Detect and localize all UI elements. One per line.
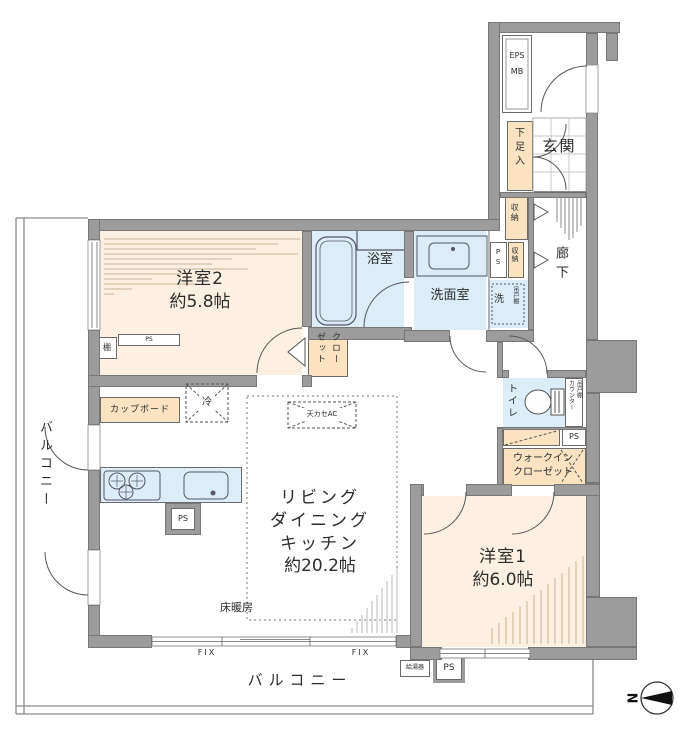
western2-name: 洋室2 (130, 270, 270, 290)
floor-plan: N EPS MB 玄関 下足入 収納 PS 収納 廊下 洗 吊戸棚 浴室 洗面室… (0, 0, 696, 750)
genkan-step-hatch (557, 197, 581, 240)
floorplan-linework: N (0, 0, 696, 750)
toilet-counter-labels: カウンター 吊戸棚 (565, 380, 583, 426)
balcony-label-bottom: バルコニー (225, 671, 375, 691)
ps-kitchen-label: PS (171, 508, 195, 530)
walkin-closet-label-1: ウォークイン (503, 452, 583, 465)
ldk-name: リビング ダイニング キッチン (235, 486, 405, 556)
washer-cupboard-label: 吊戸棚 (511, 286, 518, 304)
shoe-box-label: 下足入 (512, 127, 524, 169)
eps-label: EPS (502, 50, 532, 62)
fix-label-right: FIX (346, 647, 376, 658)
compass-icon: N (627, 682, 674, 714)
ps-wic-label: PS (562, 428, 586, 446)
ps-corridor-label: PS (494, 248, 502, 268)
floor-heating-label: 床暖房 (220, 602, 253, 615)
bathroom-label: 浴室 (356, 252, 404, 268)
ps-balcony-label: PS (436, 656, 462, 680)
mb-label: MB (502, 66, 532, 78)
toilet-label: トイレ (505, 383, 517, 419)
storage-tall-label: 収納 (510, 203, 519, 223)
fridge-label: 冷 (199, 395, 215, 411)
western1-shading (492, 556, 583, 644)
compass-north-label: N (627, 693, 642, 704)
vanity-sink-icon (417, 236, 487, 276)
entrance-label: 玄関 (533, 138, 586, 156)
toilet-cupboard-label: 吊戸棚 (575, 380, 582, 426)
corridor-label: 廊下 (552, 246, 567, 284)
counter-label: カウンター (567, 380, 574, 426)
ceiling-ac-label: 天カセAC (299, 408, 345, 421)
western2-size: 約5.8帖 (130, 293, 270, 313)
walkin-closet-label-2: クローゼット (503, 466, 583, 479)
fix-label-left: FIX (192, 647, 222, 658)
cupboard-label: カップボード (100, 397, 180, 423)
bathtub-icon (316, 231, 404, 325)
washroom-label: 洗面室 (412, 288, 488, 304)
closet-label: クローゼット (312, 332, 342, 372)
ldk-size: 約20.2帖 (235, 556, 405, 578)
water-heater-label: 給湯器 (400, 660, 430, 677)
ps-band-label: PS (118, 334, 180, 346)
washer-label: 洗 (494, 294, 504, 306)
stove-icon (104, 471, 160, 500)
balcony-label-left: バルコニー (36, 420, 51, 510)
kitchen-sink-icon (184, 472, 228, 499)
toilet-icon (525, 389, 564, 415)
western1-name: 洋室1 (428, 548, 578, 568)
western1-size: 約6.0帖 (428, 571, 578, 591)
shelf-label: 棚 (97, 337, 117, 359)
storage-small-label: 収納 (511, 247, 519, 263)
